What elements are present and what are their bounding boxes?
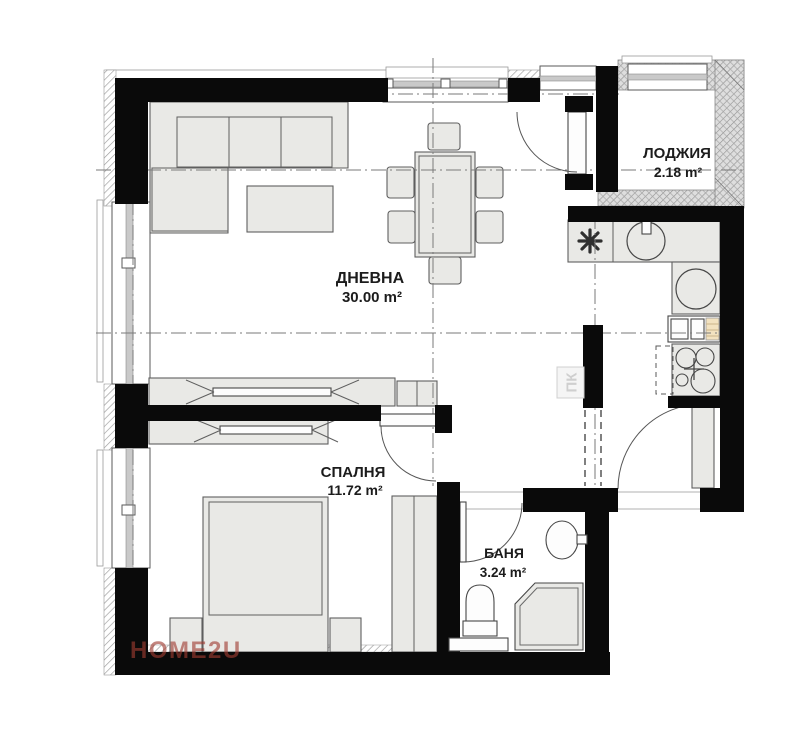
bedroom-door-leaf bbox=[380, 414, 436, 426]
nightstand bbox=[330, 618, 361, 652]
wall-kitchen-stub bbox=[583, 325, 603, 408]
window-mullion bbox=[441, 79, 450, 88]
room-area-living: 30.00 m² bbox=[342, 289, 402, 306]
room-label-living: ДНЕВНА bbox=[336, 270, 405, 287]
wall-loggia-left bbox=[596, 66, 618, 192]
wall-top bbox=[115, 78, 388, 102]
door-jamb-block bbox=[565, 174, 593, 190]
drain-star-icon bbox=[579, 230, 601, 252]
cabinet-rail bbox=[213, 388, 331, 396]
dining-chair bbox=[387, 167, 414, 198]
washing-machine-detail bbox=[691, 319, 704, 339]
coffee-table bbox=[247, 186, 333, 232]
bed bbox=[203, 497, 328, 652]
window-sill bbox=[622, 56, 712, 63]
window-sill bbox=[97, 200, 103, 382]
window-mullion bbox=[499, 79, 507, 88]
balcony-door-leaf bbox=[568, 112, 586, 174]
wall-bedroom-door-jamb bbox=[435, 405, 452, 433]
window-sill bbox=[386, 67, 508, 78]
wall-under-loggia bbox=[568, 206, 744, 222]
room-label-loggia: ЛОДЖИЯ bbox=[643, 145, 711, 162]
wall-hatch-strip bbox=[104, 568, 116, 675]
wall-entry-stub bbox=[700, 488, 744, 512]
brand-watermark: HOME2U bbox=[130, 637, 242, 664]
bathroom-door-leaf bbox=[460, 502, 466, 562]
dining-chair bbox=[476, 211, 503, 243]
washing-machine-detail bbox=[671, 319, 688, 339]
wall-hall-bath bbox=[523, 488, 618, 512]
window-sill bbox=[97, 450, 103, 566]
shower bbox=[515, 583, 583, 650]
wall-bedroom bbox=[130, 405, 381, 421]
dining-chair bbox=[429, 257, 461, 284]
window-glazing bbox=[628, 74, 707, 80]
door-jamb-block bbox=[565, 96, 593, 112]
kitchen-counter bbox=[672, 262, 720, 314]
tv-cabinet-row bbox=[149, 378, 395, 406]
bedroom-wardrobe-row bbox=[149, 417, 338, 444]
wall-kitchen-step bbox=[668, 396, 720, 408]
wall-left-upper bbox=[115, 78, 148, 204]
wardrobe-rail bbox=[220, 426, 312, 434]
wall-hatch-strip bbox=[106, 70, 387, 79]
sink-tap bbox=[577, 535, 587, 544]
room-area-loggia: 2.18 m² bbox=[654, 164, 703, 180]
wall-hatch-strip bbox=[104, 70, 116, 206]
radiator-accent bbox=[706, 318, 719, 340]
room-area-bathroom: 3.24 m² bbox=[480, 565, 527, 580]
wall-hatch-strip bbox=[508, 70, 540, 78]
stove bbox=[672, 344, 720, 396]
bathroom-sink bbox=[546, 521, 578, 559]
wall-bedroom-bath bbox=[437, 482, 460, 654]
room-label-bedroom: СПАЛНЯ bbox=[321, 464, 386, 481]
wall-bath-right bbox=[585, 512, 609, 654]
floor-plan-page: ДНЕВНА 30.00 m² СПАЛНЯ 11.72 m² БАНЯ 3.2… bbox=[0, 0, 800, 745]
room-label-bathroom: БАНЯ bbox=[484, 545, 524, 561]
loggia-wall-bottom bbox=[598, 190, 715, 206]
floor-plan: ДНЕВНА 30.00 m² СПАЛНЯ 11.72 m² БАНЯ 3.2… bbox=[0, 0, 800, 745]
wall-hatch-strip bbox=[104, 384, 116, 450]
dining-chair bbox=[476, 167, 503, 198]
wall-right bbox=[720, 206, 744, 512]
window-frame bbox=[383, 88, 508, 102]
entrance-door-leaf bbox=[692, 404, 714, 488]
room-area-bedroom: 11.72 m² bbox=[327, 482, 383, 498]
balcony-door-glazing bbox=[540, 76, 596, 81]
loggia-wall-right bbox=[715, 60, 744, 208]
window-glazing bbox=[126, 202, 133, 384]
dining-chair bbox=[388, 211, 415, 243]
wall-segment bbox=[508, 78, 540, 102]
logo-watermark: ПК bbox=[564, 372, 581, 393]
logo-watermark-box: ПК bbox=[557, 367, 584, 398]
dining-table bbox=[415, 152, 475, 257]
